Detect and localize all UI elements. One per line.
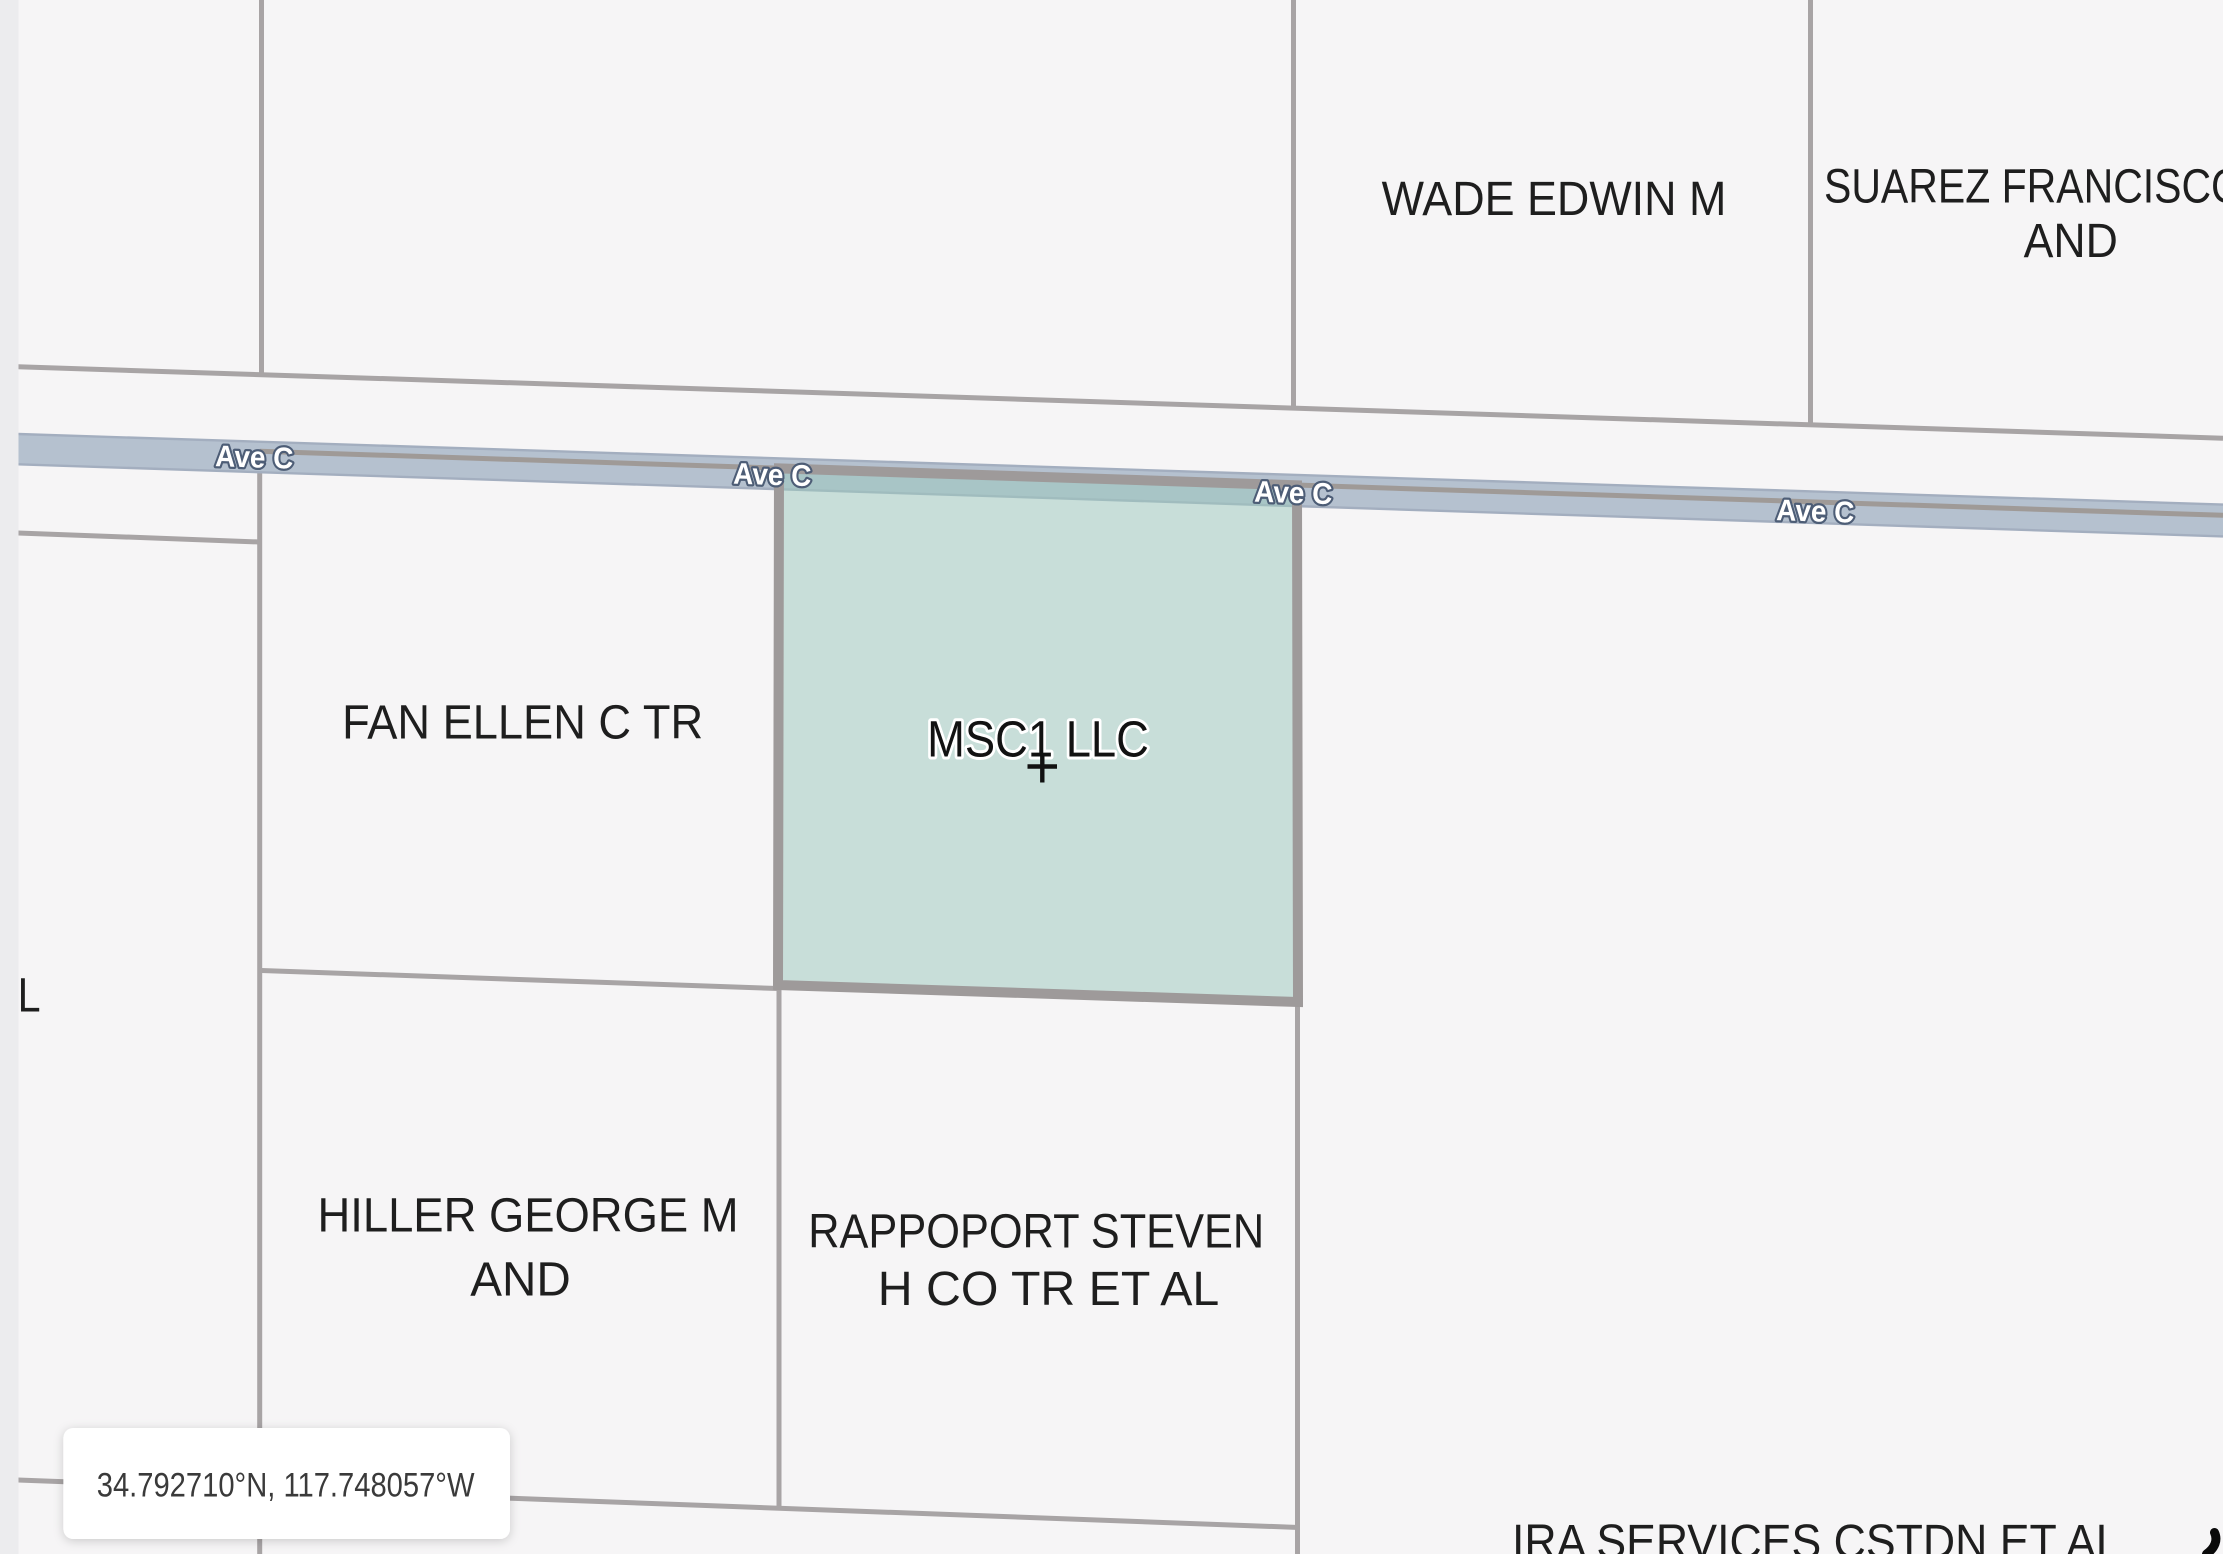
svg-text:Ave C: Ave C	[733, 458, 812, 494]
svg-text:AND: AND	[470, 1253, 571, 1306]
svg-text:FAN ELLEN C TR: FAN ELLEN C TR	[342, 695, 703, 749]
svg-text:34.792710°N, 117.748057°W: 34.792710°N, 117.748057°W	[97, 1465, 475, 1504]
svg-text:Ave C: Ave C	[1254, 476, 1333, 512]
svg-text:L: L	[18, 969, 41, 1023]
svg-text:HILLER GEORGE M: HILLER GEORGE M	[317, 1188, 738, 1241]
svg-text:AND: AND	[2024, 214, 2118, 268]
svg-text:Ave C: Ave C	[215, 440, 294, 476]
svg-text:SUAREZ FRANCISCO: SUAREZ FRANCISCO	[1824, 161, 2223, 214]
svg-text:RAPPOPORT STEVEN: RAPPOPORT STEVEN	[808, 1204, 1264, 1258]
svg-text:MSC1 LLC: MSC1 LLC	[927, 711, 1149, 768]
svg-text:IRA SERVICES CSTDN ET AL: IRA SERVICES CSTDN ET AL	[1512, 1515, 2121, 1554]
svg-text:Ave C: Ave C	[1776, 494, 1855, 530]
svg-text:H CO TR ET AL: H CO TR ET AL	[878, 1262, 1220, 1316]
svg-text:WADE EDWIN M: WADE EDWIN M	[1382, 172, 1727, 226]
